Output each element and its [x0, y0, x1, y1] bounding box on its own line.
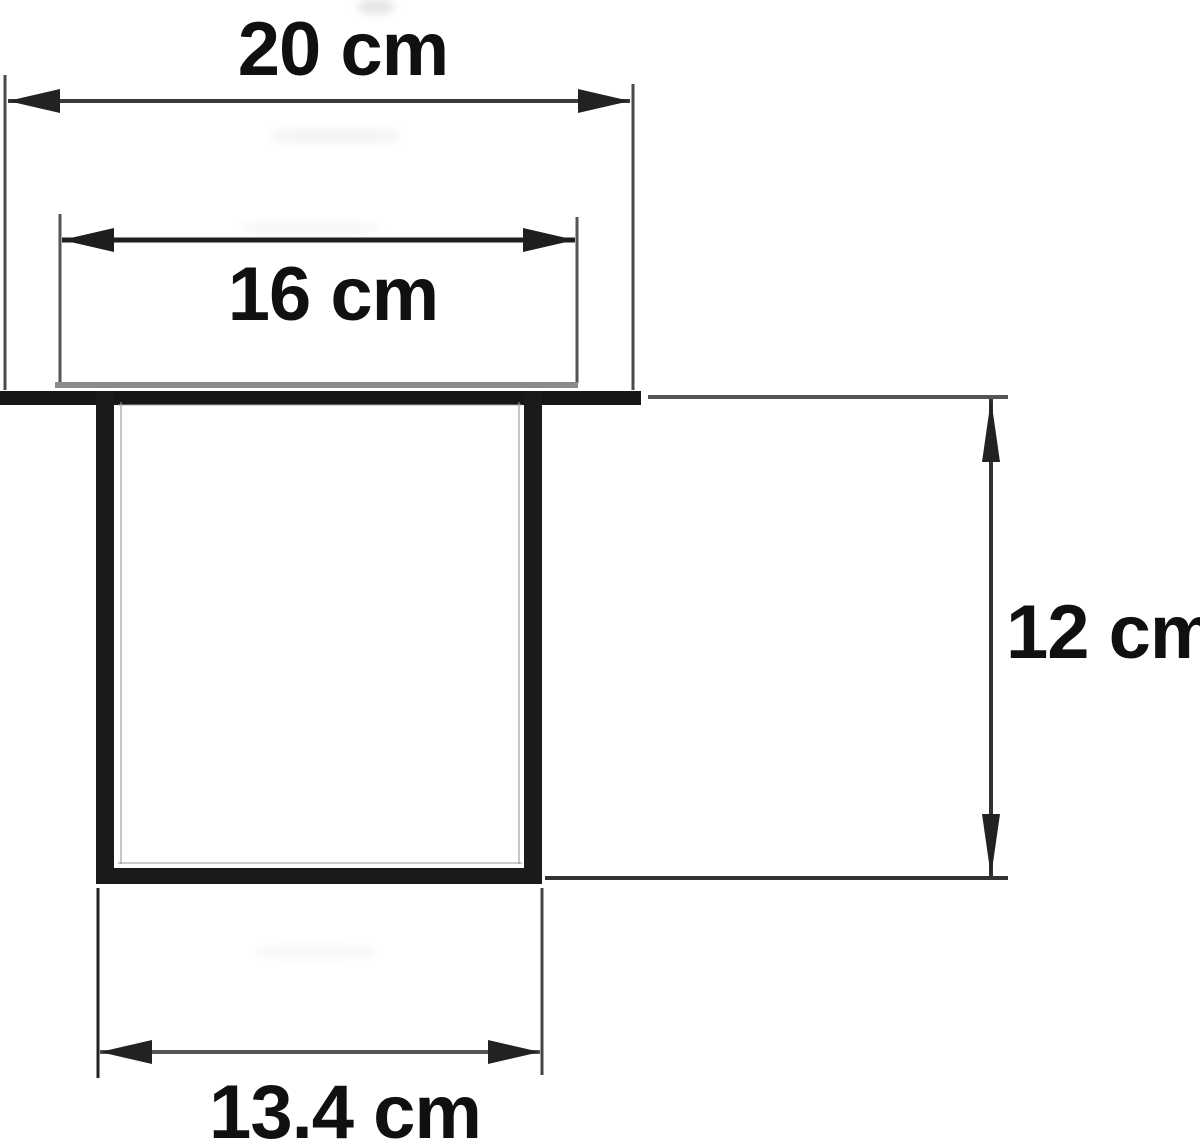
- scan-artifact: [255, 945, 375, 959]
- dimension-label-top-width: 20 cm: [238, 12, 449, 88]
- dimension-label-inner-width: 16 cm: [228, 257, 439, 333]
- arrowhead-16cm-right: [523, 228, 575, 252]
- container-bottom-wall: [96, 868, 542, 884]
- arrowhead-20cm-left: [8, 89, 60, 113]
- scan-artifact: [270, 128, 400, 144]
- container-right-wall: [524, 391, 542, 884]
- arrowhead-20cm-right: [578, 89, 630, 113]
- arrowhead-134cm-left: [100, 1040, 152, 1064]
- drawing-linework: [0, 0, 1200, 1140]
- arrowhead-16cm-left: [62, 228, 114, 252]
- dimension-label-bottom-width: 13.4 cm: [209, 1075, 481, 1140]
- flange-top-edge: [55, 382, 578, 388]
- arrowhead-12cm-bottom: [982, 814, 1000, 877]
- container-left-wall: [96, 391, 114, 884]
- scan-artifact: [240, 222, 380, 234]
- arrowhead-12cm-top: [982, 399, 1000, 462]
- arrowhead-134cm-right: [488, 1040, 540, 1064]
- dimension-drawing: 20 cm 16 cm 12 cm 13.4 cm: [0, 0, 1200, 1140]
- dimension-label-height: 12 cm: [1006, 595, 1200, 671]
